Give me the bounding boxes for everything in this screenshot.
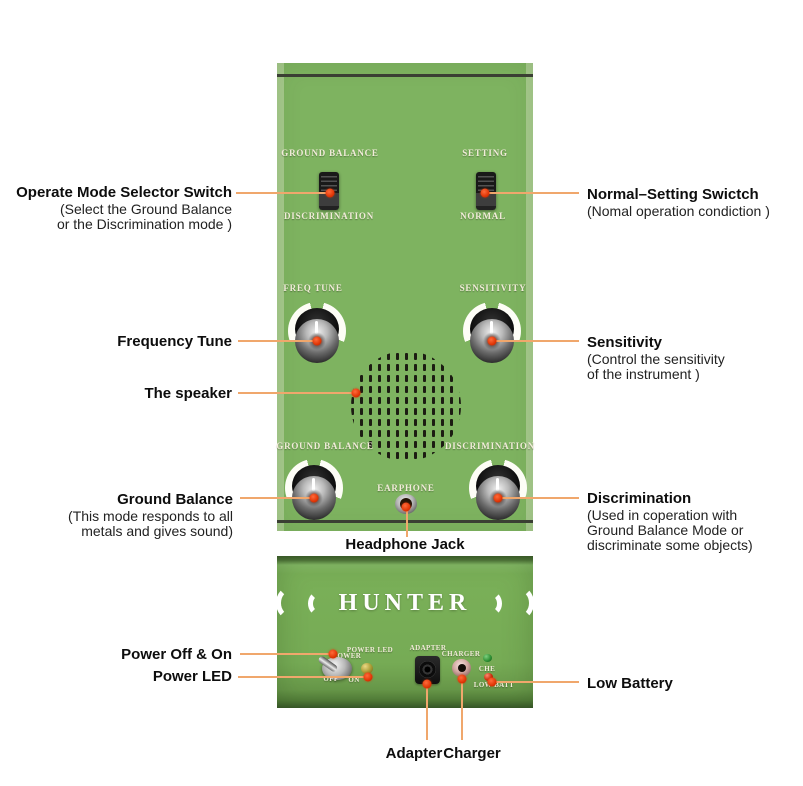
speaker-hole [405,430,408,437]
callout-dot-sensitivity-knob [488,337,497,346]
speaker-hole [396,452,399,459]
speaker-hole [441,397,444,404]
speaker-hole [387,408,390,415]
speaker-hole [441,430,444,437]
signal-waves-left-icon [188,576,330,630]
annotation-desc-line: or the Discrimination mode ) [2,217,232,232]
annotation-frequency-tune: Frequency Tune [2,333,232,351]
speaker-hole [387,419,390,426]
speaker-hole [405,452,408,459]
callout-line-speaker [238,392,357,394]
speaker-hole [405,386,408,393]
signal-arc [236,581,274,625]
speaker-hole [423,364,426,371]
speaker-hole [378,397,381,404]
speaker-hole [450,397,453,404]
speaker-hole [396,441,399,448]
speaker-hole [432,364,435,371]
callout-dot-earphone [402,503,411,512]
speaker-hole [450,375,453,382]
speaker-hole [378,408,381,415]
speaker-row [351,397,461,404]
discrimination-knob-label: DISCRIMINATION [445,441,535,451]
signal-arc [576,576,622,630]
signal-arc [536,581,574,625]
speaker-hole [378,364,381,371]
ground-balance-knob-label: GROUND BALANCE [276,441,373,451]
annotation-discrimination: Discrimination (Used in coperation with … [587,490,803,553]
speaker-hole [450,408,453,415]
annotation-desc-line: Ground Balance Mode or [587,523,803,538]
sensitivity-label: SENSITIVITY [460,283,527,293]
speaker-hole [423,430,426,437]
annotation-desc-line: of the instrument ) [587,367,803,382]
speaker-hole [396,386,399,393]
earphone-label: EARPHONE [377,483,434,493]
callout-dot-adapter [423,680,432,689]
callout-dot-charger [458,675,467,684]
charger-label: CHARGER [442,650,481,658]
callout-line-normal-setting [485,192,579,194]
speaker-hole [396,419,399,426]
speaker-hole [450,430,453,437]
annotation-ground-balance: Ground Balance (This mode responds to al… [3,491,233,539]
annotation-normal-setting: Normal–Setting Swictch (Nomal operation … [587,186,803,219]
speaker-hole [432,375,435,382]
annotation-title: Discrimination [587,490,803,508]
mode-switch-bottom-label: DISCRIMINATION [284,211,374,221]
speaker-hole [405,353,408,360]
speaker-hole [387,386,390,393]
annotation-desc-line: metals and gives sound) [3,524,233,539]
speaker-hole [369,364,372,371]
annotation-desc: (Used in coperation with Ground Balance … [587,508,803,553]
speaker-hole [405,397,408,404]
annotation-title: The speaker [2,385,232,403]
signal-arc [276,586,306,620]
callout-line-power-led [238,676,369,678]
annotation-adapter: Adapter [386,745,443,762]
speaker-hole [405,441,408,448]
speaker-hole [432,441,435,448]
speaker-hole [378,386,381,393]
annotation-power-off-on: Power Off & On [2,646,232,664]
speaker-hole [405,419,408,426]
speaker-hole [414,441,417,448]
speaker-hole [387,397,390,404]
speaker-hole [378,419,381,426]
speaker-hole [441,386,444,393]
brand-logo: HUNTER [277,581,533,625]
annotation-desc-line: (Used in coperation with [587,508,803,523]
callout-line-operate-mode [236,192,330,194]
signal-arc [188,576,234,630]
sensitivity-knob [462,302,522,366]
annotation-sensitivity: Sensitivity (Control the sensitivity of … [587,334,803,382]
speaker-hole [396,375,399,382]
speaker-hole [441,408,444,415]
mode-switch-top-label: GROUND BALANCE [281,148,378,158]
annotation-charger: Charger [443,745,501,762]
annotation-desc: (Control the sensitivity of the instrume… [587,352,803,382]
speaker-hole [423,397,426,404]
speaker-hole [450,386,453,393]
speaker-hole [441,364,444,371]
speaker-hole [414,419,417,426]
speaker-hole [396,397,399,404]
speaker-hole [414,386,417,393]
callout-dot-power-led [364,673,373,682]
speaker-hole [387,452,390,459]
speaker-hole [369,430,372,437]
speaker-hole [405,375,408,382]
speaker-hole [378,430,381,437]
annotation-speaker: The speaker [2,385,232,403]
speaker-hole [423,408,426,415]
annotation-desc-line: discriminate some objects) [587,538,803,553]
speaker-hole [432,408,435,415]
callout-line-adapter [426,683,428,740]
annotation-operate-mode: Operate Mode Selector Switch (Select the… [2,184,232,232]
speaker-hole [378,375,381,382]
signal-arc [504,586,534,620]
freq-tune-label: FREQ TUNE [283,283,342,293]
annotation-desc-line: (Select the Ground Balance [2,202,232,217]
speaker-hole [396,364,399,371]
speaker-hole [378,441,381,448]
speaker-row [351,386,461,393]
speaker-hole [351,408,354,415]
speaker-hole [423,386,426,393]
speaker-hole [423,375,426,382]
discrimination-knob [468,459,528,523]
annotation-title: Sensitivity [587,334,803,352]
speaker-hole [414,353,417,360]
speaker-hole [360,408,363,415]
annotation-headphone-jack: Headphone Jack [345,536,464,553]
charge-led [483,654,492,662]
annotation-desc-line: (Nomal operation condiction ) [587,204,803,219]
annotation-desc: (This mode responds to all metals and gi… [3,509,233,539]
annotation-desc-line: (This mode responds to all [3,509,233,524]
speaker-hole [414,430,417,437]
speaker-hole [369,386,372,393]
annotation-title: Low Battery [587,675,803,693]
callout-line-discrimination [498,497,579,499]
speaker-hole [441,419,444,426]
ground-balance-knob [284,459,344,523]
annotation-desc: (Nomal operation condiction ) [587,204,803,219]
annotation-title: Frequency Tune [2,333,232,351]
speaker-hole [360,419,363,426]
speaker-row [351,375,461,382]
speaker-hole [432,419,435,426]
speaker-hole [423,441,426,448]
annotation-desc: (Select the Ground Balance or the Discri… [2,202,232,232]
callout-dot-setting-switch [481,189,490,198]
speaker-hole [441,375,444,382]
speaker-hole [360,397,363,404]
metal-detector-diagram: GROUND BALANCE DISCRIMINATION SETTING NO… [0,0,803,786]
setting-switch-bottom-label: NORMAL [460,211,506,221]
speaker-hole [369,397,372,404]
speaker-hole [360,430,363,437]
speaker-hole [396,408,399,415]
speaker-hole [414,408,417,415]
speaker-hole [450,419,453,426]
callout-dot-disc-knob [494,494,503,503]
speaker-hole [414,364,417,371]
speaker-hole [387,375,390,382]
annotation-desc-line: (Control the sensitivity [587,352,803,367]
speaker-row [351,430,461,437]
speaker-hole [360,375,363,382]
speaker-hole [423,419,426,426]
callout-dot-power-switch [329,650,338,659]
annotation-title: Power LED [2,668,232,686]
speaker-hole [405,408,408,415]
brand-name: HUNTER [339,590,472,617]
annotation-title: Normal–Setting Swictch [587,186,803,204]
callout-line-headphone-jack [406,509,408,537]
annotation-title: Operate Mode Selector Switch [2,184,232,202]
speaker-hole [387,441,390,448]
signal-arc [480,591,502,616]
speaker-row [351,408,461,415]
setting-switch-top-label: SETTING [462,148,508,158]
che-label: CHE [479,665,495,673]
speaker-row [351,419,461,426]
speaker-hole [414,375,417,382]
speaker-hole [414,452,417,459]
callout-line-ground-balance [240,497,315,499]
speaker-hole [387,353,390,360]
speaker-hole [369,419,372,426]
power-led-label: POWER LED [347,646,393,654]
callout-line-sensitivity [492,340,579,342]
speaker-hole [351,397,354,404]
signal-waves-right-icon [480,576,622,630]
annotation-power-led: Power LED [2,668,232,686]
callout-line-power-switch [240,653,334,655]
speaker-hole [369,375,372,382]
speaker-hole [387,364,390,371]
speaker-hole [405,364,408,371]
speaker-hole [369,408,372,415]
callout-dot-low-battery [488,678,497,687]
speaker-hole [432,397,435,404]
annotation-title: Power Off & On [2,646,232,664]
annotation-low-battery: Low Battery [587,675,803,693]
speaker-hole [414,397,417,404]
callout-dot-mode-switch [326,189,335,198]
speaker-hole [396,430,399,437]
callout-line-low-battery [492,681,579,683]
callout-dot-freq-knob [313,337,322,346]
signal-arc [308,591,330,616]
speaker-hole [432,430,435,437]
speaker-hole [396,353,399,360]
callout-dot-speaker [352,389,361,398]
callout-dot-gb-knob [310,494,319,503]
freq-tune-knob [287,302,347,366]
speaker-hole [387,430,390,437]
annotation-title: Ground Balance [3,491,233,509]
callout-line-frequency-tune [238,340,318,342]
callout-line-charger [461,678,463,740]
speaker-hole [432,386,435,393]
speaker-hole [423,353,426,360]
